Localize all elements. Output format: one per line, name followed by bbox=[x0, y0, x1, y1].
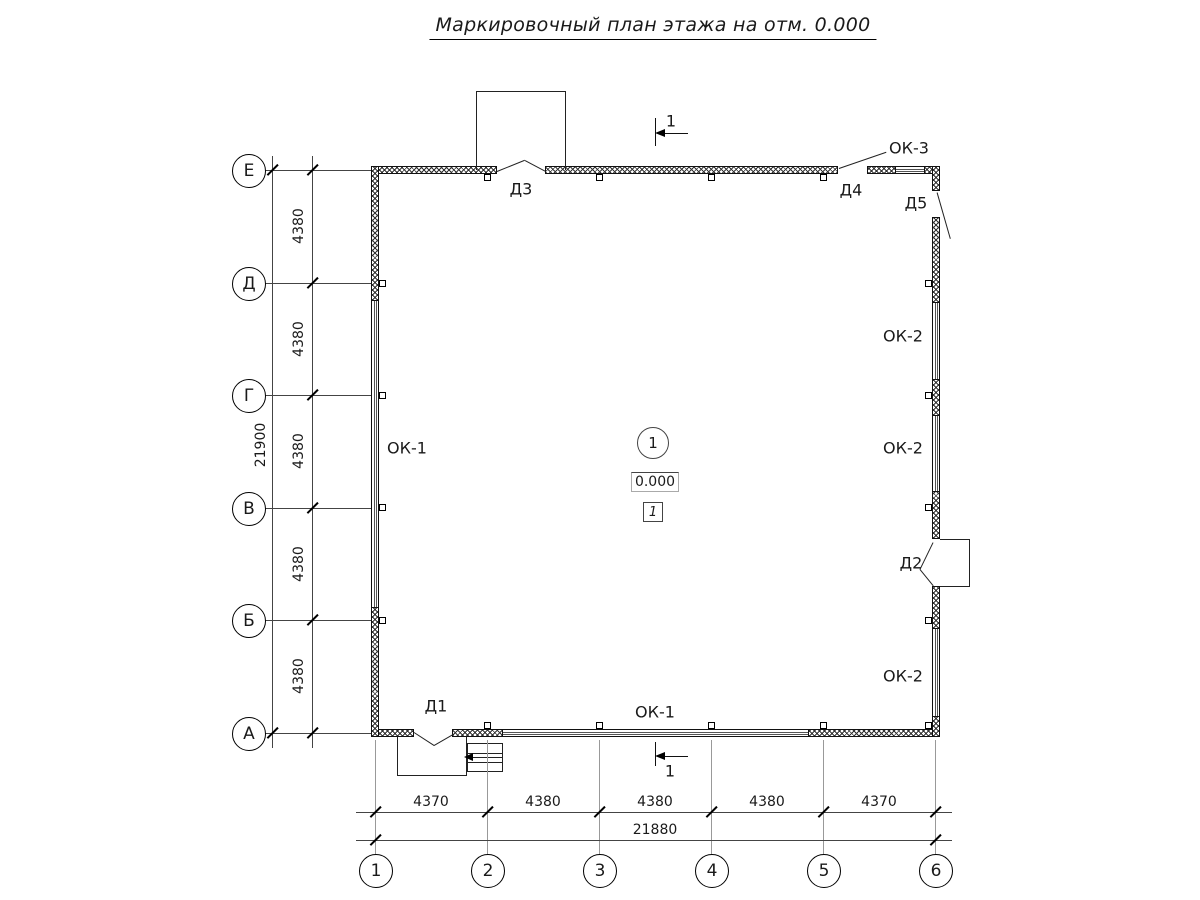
dimension-total: 21880 bbox=[633, 822, 678, 838]
row-axis-circle: Д bbox=[232, 267, 266, 301]
vestibule-outline bbox=[476, 91, 566, 170]
column-tab bbox=[925, 722, 932, 729]
row-axis-circle: А bbox=[232, 717, 266, 751]
axis-extension-line bbox=[487, 740, 488, 854]
dimension-total: 21900 bbox=[253, 423, 269, 468]
column-tab bbox=[596, 722, 603, 729]
column-tab bbox=[596, 174, 603, 181]
dimension-value: 4380 bbox=[637, 794, 673, 810]
column-tab bbox=[925, 392, 932, 399]
dimension-line bbox=[312, 156, 313, 748]
col-axis-circle: 2 bbox=[471, 854, 505, 888]
wall-segment bbox=[932, 217, 940, 303]
axis-extension-line bbox=[711, 740, 712, 854]
row-axis-circle: Б bbox=[232, 604, 266, 638]
drawing-sheet: Маркировочный план этажа на отм. 0.000 bbox=[0, 0, 1200, 900]
column-tab bbox=[484, 174, 491, 181]
wall-segment bbox=[371, 607, 379, 737]
window-label-ok3: ОК-3 bbox=[889, 139, 929, 158]
column-tab bbox=[379, 280, 386, 287]
section-label: 1 bbox=[665, 762, 675, 781]
column-tab bbox=[925, 617, 932, 624]
section-arrow-head bbox=[655, 752, 665, 760]
wall-segment bbox=[371, 166, 379, 301]
column-tab bbox=[708, 722, 715, 729]
wall-segment bbox=[932, 491, 940, 539]
section-arrow-line bbox=[662, 756, 688, 757]
dimension-line bbox=[356, 840, 952, 841]
elevation-box: 0.000 bbox=[631, 472, 679, 492]
axis-line bbox=[264, 283, 371, 284]
dimension-line bbox=[356, 812, 952, 813]
column-tab bbox=[379, 617, 386, 624]
door-label-d3: Д3 bbox=[510, 180, 533, 199]
col-axis-circle: 5 bbox=[807, 854, 841, 888]
column-tab bbox=[925, 280, 932, 287]
column-tab bbox=[379, 392, 386, 399]
axis-line bbox=[264, 620, 371, 621]
window-label-ok2-middle: ОК-2 bbox=[883, 439, 923, 458]
wall-segment bbox=[932, 166, 940, 191]
window-strip-ok2-middle bbox=[932, 416, 940, 491]
wall-segment bbox=[932, 586, 940, 629]
door-label-d5: Д5 bbox=[905, 194, 928, 213]
window-strip-ok2-lower bbox=[932, 629, 940, 716]
dimension-line bbox=[272, 156, 273, 748]
column-tab bbox=[820, 722, 827, 729]
section-arrow-head bbox=[655, 129, 665, 137]
row-axis-circle: В bbox=[232, 492, 266, 526]
section-arrow-line bbox=[662, 133, 688, 134]
entry-arrow-head bbox=[464, 753, 473, 761]
section-label: 1 bbox=[666, 112, 676, 131]
column-tab bbox=[925, 504, 932, 511]
window-label-ok1-bottom: ОК-1 bbox=[635, 703, 675, 722]
dimension-value: 4380 bbox=[291, 658, 307, 694]
axis-line bbox=[264, 395, 371, 396]
axis-line bbox=[264, 733, 371, 734]
col-axis-circle: 4 bbox=[695, 854, 729, 888]
dimension-value: 4370 bbox=[413, 794, 449, 810]
stair-tread bbox=[467, 762, 503, 763]
dimension-value: 4380 bbox=[291, 546, 307, 582]
dimension-value: 4380 bbox=[749, 794, 785, 810]
col-axis-circle: 1 bbox=[359, 854, 393, 888]
dimension-value: 4380 bbox=[291, 321, 307, 357]
column-tab bbox=[708, 174, 715, 181]
row-axis-circle: Е bbox=[232, 154, 266, 188]
axis-extension-line bbox=[599, 740, 600, 854]
room-number-box: 1 bbox=[643, 502, 663, 522]
door-label-d1: Д1 bbox=[425, 697, 448, 716]
col-axis-circle: 6 bbox=[919, 854, 953, 888]
axis-extension-line bbox=[823, 740, 824, 854]
wall-segment bbox=[808, 729, 940, 737]
dimension-value: 4380 bbox=[525, 794, 561, 810]
zone-circle: 1 bbox=[637, 427, 669, 459]
window-label-ok1-left: ОК-1 bbox=[387, 439, 427, 458]
col-axis-circle: 3 bbox=[583, 854, 617, 888]
dimension-value: 4370 bbox=[861, 794, 897, 810]
door-label-d2: Д2 bbox=[900, 554, 923, 573]
window-strip-ok3 bbox=[896, 166, 924, 174]
wall-segment bbox=[545, 166, 838, 174]
axis-line bbox=[264, 170, 371, 171]
window-label-ok2-upper: ОК-2 bbox=[883, 327, 923, 346]
column-tab bbox=[820, 174, 827, 181]
dimension-value: 4380 bbox=[291, 433, 307, 469]
axis-line bbox=[264, 508, 371, 509]
dimension-value: 4380 bbox=[291, 208, 307, 244]
column-tab bbox=[484, 722, 491, 729]
porch-outline-d2 bbox=[940, 539, 970, 587]
wall-segment bbox=[932, 716, 940, 737]
wall-segment bbox=[452, 729, 503, 737]
window-strip-ok2-upper bbox=[932, 303, 940, 379]
drawing-title: Маркировочный план этажа на отм. 0.000 bbox=[429, 14, 876, 40]
door-label-d4: Д4 bbox=[840, 181, 863, 200]
window-label-ok2-lower: ОК-2 bbox=[883, 667, 923, 686]
row-axis-circle: Г bbox=[232, 379, 266, 413]
column-tab bbox=[379, 504, 386, 511]
window-strip-ok1-left bbox=[371, 301, 379, 607]
window-strip-ok1-bottom bbox=[503, 729, 808, 737]
wall-segment bbox=[867, 166, 896, 174]
wall-segment bbox=[932, 379, 940, 416]
